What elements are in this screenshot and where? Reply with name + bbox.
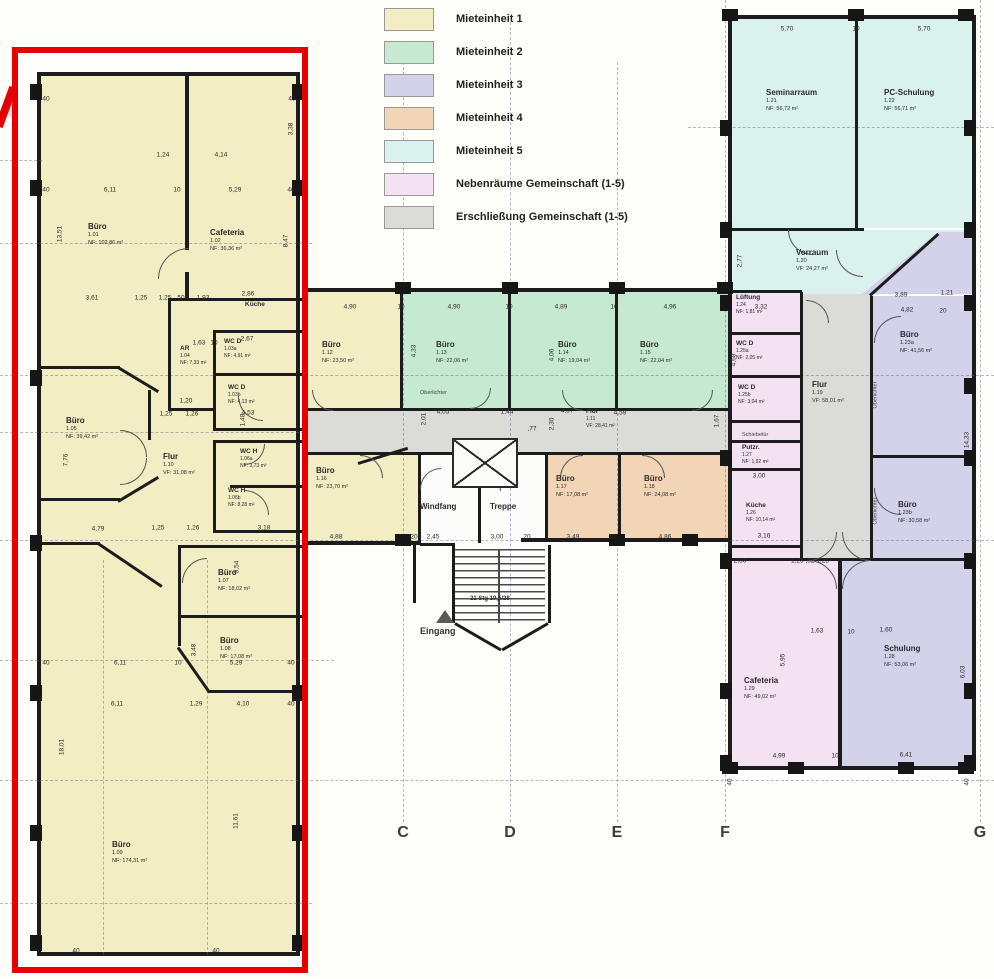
- room-number: 1.12: [322, 350, 354, 357]
- dimension-label: 40: [727, 778, 734, 785]
- grid-dash-h: [688, 127, 994, 128]
- grid-letter: G: [974, 824, 986, 842]
- legend-row: Mieteinheit 2: [384, 41, 628, 63]
- legend-row: Erschließung Gemeinschaft (1-5): [384, 206, 628, 228]
- wall-pilaster: [964, 553, 976, 569]
- room-label: Büro1.16NF: 23,70 m²: [316, 466, 348, 491]
- wall-pilaster: [964, 683, 976, 699]
- legend-label: Mieteinheit 4: [456, 112, 523, 124]
- legend-row: Mieteinheit 1: [384, 8, 628, 30]
- wall: [302, 408, 730, 411]
- dimension-label: 1,21: [941, 290, 954, 297]
- legend-swatch: [384, 107, 434, 130]
- dimension-label: 1,44: [501, 409, 514, 416]
- wall: [870, 296, 873, 458]
- room-name: Flur: [812, 380, 844, 390]
- legend-swatch: [384, 140, 434, 163]
- wall-pilaster: [964, 222, 976, 238]
- room-number: 1.20: [796, 258, 828, 265]
- wall: [618, 455, 621, 540]
- room-name: Büro: [316, 466, 348, 476]
- dimension-label: 3,00: [753, 473, 766, 480]
- annotation: Schiebetür: [742, 432, 768, 438]
- dimension-label: 10: [610, 304, 617, 311]
- legend-label: Erschließung Gemeinschaft (1-5): [456, 211, 628, 223]
- room-number: 1.17: [556, 484, 588, 491]
- wall-pilaster: [720, 120, 732, 136]
- wall: [730, 545, 802, 548]
- wall: [730, 332, 802, 335]
- dimension-label: 4,88: [330, 534, 343, 541]
- wall-pilaster: [720, 450, 732, 466]
- wall: [730, 375, 802, 378]
- dimension-label: 14,33: [964, 432, 971, 448]
- wall: [413, 545, 416, 603]
- wall-diagonal: [501, 622, 548, 651]
- dimension-label: 3,32: [755, 304, 768, 311]
- wall-pilaster: [788, 762, 804, 774]
- room-number: 1.21: [766, 98, 817, 105]
- annotation: Oberlichter: [420, 390, 447, 396]
- dimension-label: 2,30: [549, 418, 556, 431]
- room-number: 1.13: [436, 350, 468, 357]
- legend-swatch: [384, 74, 434, 97]
- room-name: Küche: [746, 502, 775, 510]
- grid-letter: F: [720, 824, 730, 842]
- annotation: Oberlichter: [872, 498, 878, 525]
- room-area: NF: 23,70 m²: [316, 484, 348, 491]
- dimension-label: 10: [852, 26, 859, 33]
- room-area: NF: 41,56 m²: [900, 348, 932, 355]
- dimension-label: 4,59: [614, 410, 627, 417]
- dimension-label: 3,16: [758, 533, 771, 540]
- room-area: NF: 53,06 m²: [884, 662, 920, 669]
- dimension-label: 10: [847, 629, 854, 636]
- right-building-outline: [728, 15, 976, 770]
- room-area: VF: 24,27 m²: [796, 266, 828, 273]
- room-label: Putzr.1.27NF: 1,92 m²: [742, 444, 768, 465]
- dimension-label: 20: [523, 534, 530, 541]
- legend-label: Mieteinheit 3: [456, 79, 523, 91]
- dimension-label: 4,86: [659, 534, 672, 541]
- legend-swatch: [384, 206, 434, 229]
- legend-row: Mieteinheit 4: [384, 107, 628, 129]
- dimension-label: 2,01: [421, 413, 428, 426]
- room-name: PC-Schulung: [884, 88, 934, 98]
- wall-pilaster: [958, 762, 974, 774]
- dimension-label: 4,82: [901, 307, 914, 314]
- dimension-label: 4,99: [773, 753, 786, 760]
- wall: [838, 560, 842, 768]
- wall-pilaster: [720, 553, 732, 569]
- room-label: Windfang: [420, 502, 456, 512]
- annotation: Oberlichter: [872, 382, 878, 409]
- room-area: NF: 22,06 m²: [436, 358, 468, 365]
- room-area: NF: 10,14 m²: [746, 517, 775, 524]
- dimension-label: 3,89: [895, 292, 908, 299]
- room-area: NF: 22,04 m²: [640, 358, 672, 365]
- room-label: WC D1.25bNF: 3,04 m²: [738, 384, 764, 405]
- legend-row: Mieteinheit 3: [384, 74, 628, 96]
- dimension-label: 2,77: [737, 255, 744, 268]
- room-area: VF: 28,41 m²: [586, 423, 615, 430]
- room-name: Büro: [556, 474, 588, 484]
- wall: [872, 455, 976, 458]
- room-area: NF: 56,72 m²: [766, 106, 817, 113]
- room-number: 1.29: [744, 686, 778, 693]
- room-label: Büro1.12NF: 23,50 m²: [322, 340, 354, 365]
- room-name: WC D: [736, 340, 762, 348]
- dimension-label: 10: [608, 534, 615, 541]
- legend-label: Mieteinheit 1: [456, 13, 523, 25]
- legend-row: Nebenräume Gemeinschaft (1-5): [384, 173, 628, 195]
- room-name: Büro: [644, 474, 676, 484]
- room-number: 1.19: [812, 390, 844, 397]
- wall-pilaster: [720, 683, 732, 699]
- room-label: Büro1.14NF: 19,04 m²: [558, 340, 590, 365]
- room-area: NF: 49,02 m²: [744, 694, 778, 701]
- dimension-label: 5,95: [780, 654, 787, 667]
- wall: [730, 420, 802, 423]
- dimension-label: 5,70: [781, 26, 794, 33]
- legend-label: Nebenräume Gemeinschaft (1-5): [456, 178, 625, 190]
- wall-diagonal: [454, 622, 501, 651]
- room-number: 1.18: [644, 484, 676, 491]
- room-label: PC-Schulung1.22NF: 56,71 m²: [884, 88, 934, 113]
- room-name: Vorraum: [796, 248, 828, 258]
- wall: [730, 440, 802, 443]
- room-number: 1.23a: [900, 340, 932, 347]
- wall-pilaster: [898, 762, 914, 774]
- dimension-label: 4,06: [549, 349, 556, 362]
- room-area: NF: 1,92 m²: [742, 459, 768, 466]
- room-label: Treppe: [490, 502, 516, 512]
- room-area: NF: 19,04 m²: [558, 358, 590, 365]
- dimension-label: 1,67: [714, 415, 721, 428]
- entrance-arrow-icon: [436, 610, 454, 623]
- room-number: 1.15: [640, 350, 672, 357]
- wall-pilaster: [720, 222, 732, 238]
- room-area: NF: 17,08 m²: [556, 492, 588, 499]
- wall-pilaster: [502, 282, 518, 294]
- wall-pilaster: [720, 295, 732, 311]
- legend-label: Mieteinheit 2: [456, 46, 523, 58]
- room-label: Büro1.18NF: 24,08 m²: [644, 474, 676, 499]
- room-name: Seminarraum: [766, 88, 817, 98]
- room-name: Büro: [436, 340, 468, 350]
- room-name: Putzr.: [742, 444, 768, 452]
- room-number: 1.22: [884, 98, 934, 105]
- elevator-shaft: [452, 438, 518, 488]
- staircase: [455, 549, 545, 621]
- wall: [521, 538, 730, 542]
- dimension-label: 4,89: [555, 304, 568, 311]
- legend-swatch: [384, 173, 434, 196]
- room-area: NF: 30,58 m²: [898, 518, 930, 525]
- dimension-label: 4,90: [448, 304, 461, 311]
- grid-dash-v: [980, 0, 981, 822]
- room-area: NF: 24,08 m²: [644, 492, 676, 499]
- room-name: WC D: [738, 384, 764, 392]
- room-name: Büro: [640, 340, 672, 350]
- staircase-rail: [498, 549, 500, 623]
- dimension-label: 4,96: [664, 304, 677, 311]
- dimension-label: 2,36: [734, 558, 747, 565]
- room-number: 1.28: [884, 654, 920, 661]
- annotation: Eingang: [420, 626, 456, 636]
- room-label: Büro1.23aNF: 41,56 m²: [900, 330, 932, 355]
- dimension-label: 10: [397, 304, 404, 311]
- wall-pilaster: [964, 120, 976, 136]
- dimension-label: 4,68: [731, 354, 738, 367]
- room-name: Cafeteria: [744, 676, 778, 686]
- room-label: Seminarraum1.21NF: 56,72 m²: [766, 88, 817, 113]
- dimension-label: 6,41: [900, 752, 913, 759]
- room-label: Vorraum1.20VF: 24,27 m²: [796, 248, 828, 273]
- dimension-label: 1,25 ,62 1,25: [791, 558, 829, 565]
- room-label: Büro1.23bNF: 30,58 m²: [898, 500, 930, 525]
- wall-pilaster: [964, 450, 976, 466]
- red-highlight-box: [12, 47, 308, 973]
- legend: Mieteinheit 1Mieteinheit 2Mieteinheit 3M…: [384, 8, 628, 239]
- room-area: NF: 2,05 m²: [736, 355, 762, 362]
- room-label: Flur1.11VF: 28,41 m²: [586, 408, 615, 429]
- legend-swatch: [384, 41, 434, 64]
- room-name: Büro: [900, 330, 932, 340]
- room-label: Cafeteria1.29NF: 49,02 m²: [744, 676, 778, 701]
- wall: [545, 455, 548, 540]
- room-number: 1.23b: [898, 510, 930, 517]
- wall: [548, 545, 551, 623]
- room-area: NF: 56,71 m²: [884, 106, 934, 113]
- grid-letter: E: [612, 824, 623, 842]
- room-area: NF: 3,04 m²: [738, 399, 764, 406]
- legend-swatch: [384, 8, 434, 31]
- annotation: 21 Stg 19,5/28: [470, 596, 510, 602]
- wall-pilaster: [609, 282, 625, 294]
- room-label: Büro1.13NF: 22,06 m²: [436, 340, 468, 365]
- dimension-label: ,77: [527, 426, 536, 433]
- wall: [730, 468, 802, 471]
- grid-letter: C: [397, 824, 409, 842]
- room-label: Küche1.26NF: 10,14 m²: [746, 502, 775, 523]
- room-name: Treppe: [490, 502, 516, 512]
- room-name: Büro: [558, 340, 590, 350]
- wall: [730, 558, 976, 561]
- room-label: Büro1.15NF: 22,04 m²: [640, 340, 672, 365]
- room-number: 1.16: [316, 476, 348, 483]
- wall: [730, 290, 802, 293]
- dimension-label: 20: [410, 534, 417, 541]
- room-area: NF: 23,50 m²: [322, 358, 354, 365]
- wall-pilaster: [717, 282, 733, 294]
- room-name: Büro: [898, 500, 930, 510]
- grid-letter: D: [504, 824, 516, 842]
- wall-pilaster: [682, 534, 698, 546]
- dimension-label: 10: [505, 304, 512, 311]
- floor-plan-canvas: Mieteinheit 1Mieteinheit 2Mieteinheit 3M…: [0, 0, 994, 979]
- room-name: Lüftung: [736, 294, 762, 302]
- dimension-label: 1,60: [880, 627, 893, 634]
- room-label: WC D1.25aNF: 2,05 m²: [736, 340, 762, 361]
- dimension-label: 2,45: [427, 534, 440, 541]
- wall-pilaster: [964, 378, 976, 394]
- dimension-label: 4,90: [344, 304, 357, 311]
- dimension-label: 20: [939, 308, 946, 315]
- room-number: 1.14: [558, 350, 590, 357]
- wall-pilaster: [848, 9, 864, 21]
- room-name: Flur: [586, 408, 615, 416]
- room-label: Flur1.19VF: 58,01 m²: [812, 380, 844, 405]
- dimension-label: 4,05: [437, 409, 450, 416]
- dimension-label: 40: [964, 778, 971, 785]
- dimension-label: 5,70: [918, 26, 931, 33]
- wall-pilaster: [395, 282, 411, 294]
- dimension-label: 3,00: [491, 534, 504, 541]
- wall: [855, 17, 858, 228]
- wall-pilaster: [958, 9, 974, 21]
- wall: [420, 543, 455, 546]
- room-area: VF: 58,01 m²: [812, 398, 844, 405]
- wall-pilaster: [722, 762, 738, 774]
- room-name: Windfang: [420, 502, 456, 512]
- room-label: Büro1.17NF: 17,08 m²: [556, 474, 588, 499]
- wall-pilaster: [964, 295, 976, 311]
- dimension-label: 4,37: [561, 408, 574, 415]
- wall-pilaster: [395, 534, 411, 546]
- legend-row: Mieteinheit 5: [384, 140, 628, 162]
- dimension-label: 1,63: [811, 628, 824, 635]
- dimension-label: 6,03: [960, 666, 967, 679]
- wall: [418, 455, 421, 543]
- room-name: Büro: [322, 340, 354, 350]
- dimension-label: 4,33: [411, 345, 418, 358]
- room-name: Schulung: [884, 644, 920, 654]
- dimension-label: 10: [831, 753, 838, 760]
- wall-pilaster: [722, 9, 738, 21]
- dimension-label: 3,49: [567, 534, 580, 541]
- room-label: Schulung1.28NF: 53,06 m²: [884, 644, 920, 669]
- legend-label: Mieteinheit 5: [456, 145, 523, 157]
